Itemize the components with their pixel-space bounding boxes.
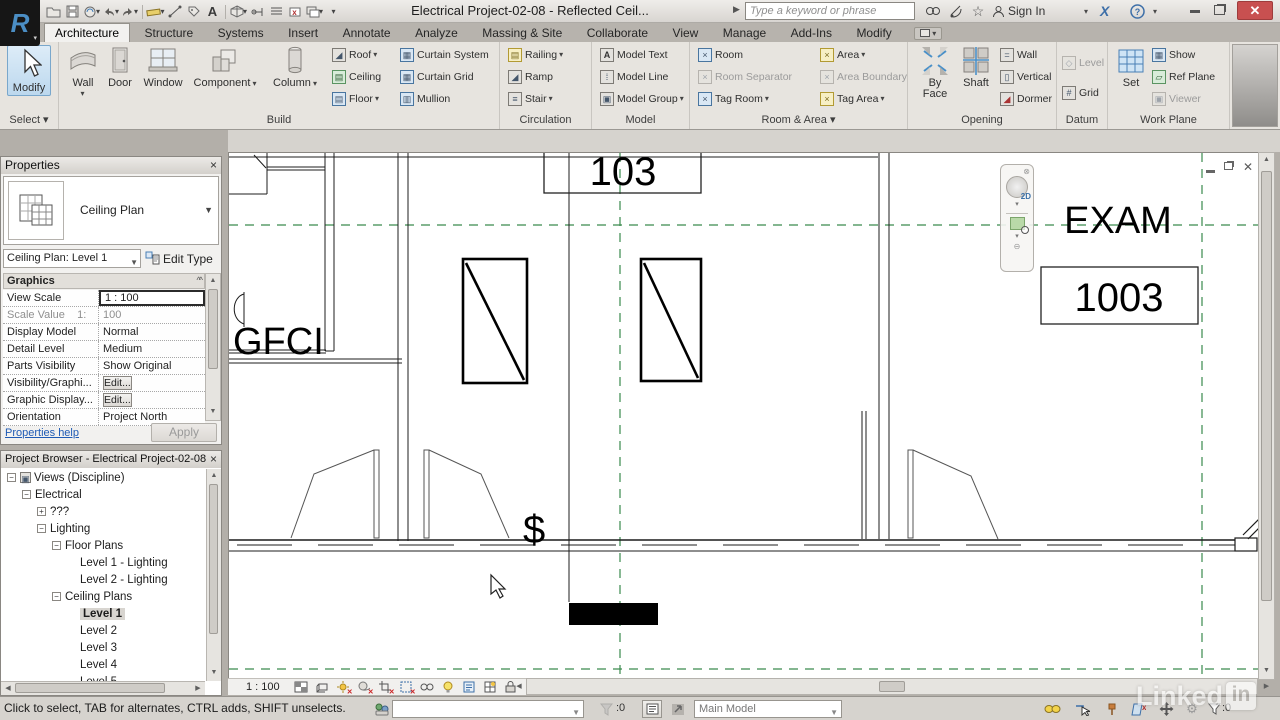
- panel-opening: ByFace Shaft =Wall ▯Vertical ◢Dormer Ope…: [908, 42, 1057, 129]
- room-label-exam: EXAM: [1064, 200, 1172, 242]
- room-tag-1003: 1003: [1075, 276, 1164, 320]
- properties-scrollbar[interactable]: ▲ ▼: [205, 273, 221, 421]
- detail-level-icon[interactable]: [314, 680, 330, 695]
- apply-button[interactable]: Apply: [151, 423, 217, 442]
- scroll-down-icon[interactable]: ▼: [207, 666, 221, 680]
- exchange-apps-icon[interactable]: X: [1100, 2, 1109, 20]
- navbar-close-icon[interactable]: ⊗: [1023, 167, 1030, 176]
- visual-style-icon[interactable]: [293, 680, 309, 695]
- browser-tree: −▣Views (Discipline) −Electrical +??? −L…: [1, 469, 205, 681]
- window-button[interactable]: Window: [141, 45, 185, 89]
- ribbon-display-toggle[interactable]: ▾: [914, 27, 942, 40]
- area-button[interactable]: ×Area▾: [820, 46, 865, 64]
- tag-icon[interactable]: [184, 3, 203, 21]
- tree-item-level1-lighting[interactable]: Level 1 - Lighting: [1, 554, 205, 571]
- crop-region-icon[interactable]: [398, 680, 414, 695]
- panel-icon: [920, 29, 930, 37]
- tree-item-floor-plans[interactable]: −Floor Plans: [1, 537, 205, 554]
- set-work-plane-button[interactable]: Set: [1114, 45, 1148, 89]
- room-separator-button: ×Room Separator: [698, 68, 792, 86]
- light-fixtures[interactable]: [463, 259, 701, 383]
- tab-collaborate[interactable]: Collaborate: [577, 24, 658, 42]
- component-button[interactable]: Component ▾: [187, 45, 263, 89]
- tab-analyze[interactable]: Analyze: [405, 24, 468, 42]
- level-button: ◇Level: [1062, 54, 1104, 72]
- type-selector-caret-icon[interactable]: ▼: [204, 205, 213, 215]
- view-restore-icon[interactable]: [1224, 161, 1233, 173]
- svg-text:?: ?: [1135, 7, 1141, 17]
- dormer-icon: ◢: [1000, 92, 1014, 106]
- scroll-right-icon[interactable]: ▶: [192, 682, 204, 695]
- visibility-edit-button[interactable]: Edit...: [103, 376, 132, 390]
- room-tag-103: 103: [590, 153, 657, 194]
- column-icon: [284, 45, 306, 77]
- instance-caret-icon: ▼: [130, 254, 138, 271]
- property-row: Display Model Normal: [3, 324, 205, 341]
- window-icon: [147, 45, 179, 77]
- tree-item-level2[interactable]: Level 2: [1, 622, 205, 639]
- door-symbols[interactable]: [291, 450, 998, 539]
- show-work-plane-button[interactable]: ▦Show: [1152, 46, 1195, 64]
- shaft-icon: [961, 45, 991, 77]
- room-icon: ×: [698, 48, 712, 62]
- model-group-button[interactable]: ▣Model Group▾: [600, 90, 684, 108]
- scroll-left-icon[interactable]: ◀: [2, 682, 14, 695]
- revit-application-menu[interactable]: R▾: [0, 0, 40, 46]
- panel-label-model: Model: [592, 113, 689, 129]
- panel-model: AModel Text ⁞Model Line ▣Model Group▾ Mo…: [592, 42, 690, 129]
- shadows-icon[interactable]: [356, 680, 372, 695]
- panel-datum: ◇Level #Grid Datum: [1057, 42, 1108, 129]
- gfci-label: GFCI: [233, 321, 324, 363]
- switch-symbol: $: [523, 508, 545, 552]
- close-button[interactable]: ✕: [1237, 1, 1273, 20]
- grid-button[interactable]: #Grid: [1062, 84, 1099, 102]
- scroll-up-icon[interactable]: ▲: [206, 274, 220, 288]
- model-group-icon: ▣: [600, 92, 614, 106]
- ceiling-plan-icon: [16, 191, 56, 231]
- filled-ceiling-element[interactable]: [569, 603, 658, 625]
- tag-room-button[interactable]: ×Tag Room▾: [698, 90, 769, 108]
- panel-build: Wall▾ Door Window Component ▾ Column ▾ ◢…: [59, 42, 500, 129]
- view-minimize-icon[interactable]: [1206, 164, 1215, 176]
- tab-systems[interactable]: Systems: [208, 24, 274, 42]
- model-line-button[interactable]: ⁞Model Line: [600, 68, 668, 86]
- panel-label-work-plane: Work Plane: [1108, 113, 1229, 129]
- graphic-display-edit-button[interactable]: Edit...: [103, 393, 132, 407]
- column-button[interactable]: Column ▾: [269, 45, 321, 89]
- stair-icon: ≡: [508, 92, 522, 106]
- panel-label-opening: Opening: [908, 113, 1056, 129]
- tree-item-level4[interactable]: Level 4: [1, 656, 205, 673]
- restore-button[interactable]: [1214, 5, 1225, 15]
- linkedin-watermark: Linkedin: [1136, 676, 1256, 716]
- door-icon: [107, 45, 133, 77]
- vertical-opening-button[interactable]: ▯Vertical: [1000, 68, 1051, 86]
- tag-area-button[interactable]: ×Tag Area▾: [820, 90, 884, 108]
- tab-structure[interactable]: Structure: [134, 24, 203, 42]
- scroll-up-icon[interactable]: ▲: [1259, 153, 1274, 167]
- properties-scroll-thumb[interactable]: [208, 289, 218, 369]
- wall-button[interactable]: Wall▾: [65, 45, 101, 98]
- roof-button[interactable]: ◢Roof▾: [332, 46, 377, 64]
- window-title: Electrical Project-02-08 - Reflected Cei…: [340, 3, 720, 18]
- type-selector[interactable]: Ceiling Plan ▼: [3, 176, 219, 245]
- panel-work-plane: Set ▦Show ▱Ref Plane ▣Viewer Work Plane: [1108, 42, 1230, 129]
- browser-vscrollbar[interactable]: ▲ ▼: [206, 469, 221, 681]
- room-button[interactable]: ×Room: [698, 46, 743, 64]
- mullion-button[interactable]: ▥Mullion: [400, 90, 450, 108]
- area-boundary-button: ×Area Boundary: [820, 68, 907, 86]
- ribbon: Modify Select ▾ Wall▾ Door Window Compon…: [0, 42, 1280, 130]
- by-face-icon: [920, 45, 950, 77]
- type-preview: [8, 181, 64, 240]
- floor-icon: ▤: [332, 92, 346, 106]
- show-work-plane-icon: ▦: [1152, 48, 1166, 62]
- ceiling-plan-drawing: 103 EXAM 1003 GFCI $: [229, 153, 1259, 679]
- set-work-plane-icon: [1116, 45, 1146, 77]
- tree-item-lighting[interactable]: −Lighting: [1, 520, 205, 537]
- panel-label-datum: Datum: [1057, 113, 1107, 129]
- hide-isolate-icon[interactable]: [419, 680, 435, 695]
- wall-opening-button[interactable]: =Wall: [1000, 46, 1037, 64]
- properties-close-icon[interactable]: ×: [210, 158, 217, 172]
- zoom-region-icon[interactable]: [1010, 217, 1025, 230]
- project-browser: Project Browser - Electrical Project-02-…: [0, 450, 222, 696]
- panel-label-circulation: Circulation: [500, 113, 591, 129]
- ribbon-tab-bar: Architecture Structure Systems Insert An…: [0, 23, 1280, 42]
- aligned-dimension-icon[interactable]: [165, 3, 184, 21]
- help-icon[interactable]: ?: [1130, 2, 1145, 20]
- active-only-icon[interactable]: [668, 700, 688, 718]
- ramp-button[interactable]: ◢Ramp: [508, 68, 553, 86]
- tag-room-icon: ×: [698, 92, 712, 106]
- property-row: Detail Level Medium: [3, 341, 205, 358]
- viewer-button: ▣Viewer: [1152, 90, 1201, 108]
- title-expand-icon[interactable]: ▶: [733, 4, 740, 15]
- area-icon: ×: [820, 48, 834, 62]
- tag-area-icon: ×: [820, 92, 834, 106]
- modify-cursor-icon: [16, 48, 42, 82]
- tab-view[interactable]: View: [663, 24, 709, 42]
- door-button[interactable]: Door: [103, 45, 137, 89]
- scroll-down-icon[interactable]: ▼: [1259, 664, 1274, 678]
- panel-label-select[interactable]: Select ▾: [0, 113, 58, 129]
- tab-insert[interactable]: Insert: [278, 24, 328, 42]
- curtain-system-button[interactable]: ▦Curtain System: [400, 46, 489, 64]
- reveal-hidden-icon[interactable]: [440, 680, 456, 695]
- type-name: Ceiling Plan: [80, 203, 144, 217]
- room-separator-icon: ×: [698, 70, 712, 84]
- display-model-value[interactable]: Normal: [99, 324, 205, 340]
- property-row: Scale Value 1: 100: [3, 307, 205, 324]
- steering-wheel-icon[interactable]: 2D: [1006, 176, 1028, 198]
- properties-palette: Properties× Ceiling Plan ▼ Ceiling Plan:…: [0, 156, 222, 445]
- ribbon-empty-space: [1232, 44, 1278, 127]
- viewer-icon: ▣: [1152, 92, 1166, 106]
- title-bar: ▾ ▾ ▾ ▾ A ▾ x ▾ ▾ Electrical Project-02-…: [0, 0, 1280, 23]
- editable-only-glasses-icon[interactable]: [1042, 700, 1062, 718]
- tree-item-electrical[interactable]: −Electrical: [1, 486, 205, 503]
- drawing-canvas[interactable]: 103 EXAM 1003 GFCI $: [228, 152, 1258, 678]
- ref-plane-button[interactable]: ▱Ref Plane: [1152, 68, 1215, 86]
- close-hidden-windows-icon[interactable]: x: [286, 3, 305, 21]
- parts-visibility-value[interactable]: Show Original: [99, 358, 205, 374]
- tab-manage[interactable]: Manage: [713, 24, 776, 42]
- zoom-caret-icon[interactable]: ▾: [1015, 232, 1019, 240]
- view-scale-input[interactable]: 1 : 100: [99, 290, 205, 306]
- instance-selector[interactable]: Ceiling Plan: Level 1▼: [3, 249, 141, 268]
- section-icon[interactable]: [248, 3, 267, 21]
- hscroll-thumb[interactable]: [879, 681, 905, 692]
- view-close-icon[interactable]: ✕: [1243, 160, 1253, 174]
- wall-icon: [68, 45, 98, 77]
- properties-help-link[interactable]: Properties help: [5, 427, 79, 439]
- tree-item-level2-lighting[interactable]: Level 2 - Lighting: [1, 571, 205, 588]
- crop-view-icon[interactable]: [377, 680, 393, 695]
- detail-level-value[interactable]: Medium: [99, 341, 205, 357]
- ceiling-icon: ▤: [332, 70, 346, 84]
- area-boundary-icon: ×: [820, 70, 834, 84]
- section-graphics[interactable]: Graphics^^: [3, 273, 205, 289]
- by-face-button[interactable]: ByFace: [916, 45, 954, 100]
- tab-modify[interactable]: Modify: [846, 24, 901, 42]
- open-icon[interactable]: [44, 3, 63, 21]
- ceiling-button[interactable]: ▤Ceiling: [332, 68, 381, 86]
- wall-opening-icon: =: [1000, 48, 1014, 62]
- property-row: Parts Visibility Show Original: [3, 358, 205, 375]
- edit-type-button[interactable]: Edit Type: [145, 247, 221, 270]
- tab-add-ins[interactable]: Add-Ins: [781, 24, 842, 42]
- svg-text:x: x: [292, 8, 297, 17]
- curtain-grid-icon: ▦: [400, 70, 414, 84]
- vertical-opening-icon: ▯: [1000, 70, 1014, 84]
- undo-icon[interactable]: ▾: [101, 3, 120, 21]
- browser-hscroll-thumb[interactable]: [15, 683, 165, 693]
- sync-icon[interactable]: ▾: [82, 3, 101, 21]
- main-model-combo[interactable]: Main Model▼: [694, 700, 842, 718]
- worksets-icon[interactable]: [372, 700, 392, 718]
- properties-title: Properties×: [1, 157, 221, 174]
- thin-lines-icon[interactable]: [267, 3, 286, 21]
- model-text-icon: A: [600, 48, 614, 62]
- navigation-bar: ⊗ 2D ▾ ▾ ⊖: [1000, 164, 1034, 272]
- railing-button[interactable]: ▤Railing▾: [508, 46, 563, 64]
- mouse-cursor: [491, 575, 505, 598]
- view-scale[interactable]: 1 : 100: [246, 681, 280, 693]
- tree-item-ceiling-plans[interactable]: −Ceiling Plans: [1, 588, 205, 605]
- save-icon[interactable]: [63, 3, 82, 21]
- communication-center-icon[interactable]: [946, 2, 966, 20]
- edit-type-icon: [145, 251, 160, 266]
- sign-in-button[interactable]: Sign In: [1008, 2, 1045, 20]
- switch-windows-icon[interactable]: ▾: [305, 3, 324, 21]
- shaft-button[interactable]: Shaft: [958, 45, 994, 89]
- view-area-margin: [228, 130, 1280, 152]
- level-icon: ◇: [1062, 56, 1076, 70]
- dormer-button[interactable]: ◢Dormer: [1000, 90, 1052, 108]
- panel-select: Modify Select ▾: [0, 42, 59, 129]
- corridor-wall[interactable]: [229, 517, 1259, 551]
- floor-button[interactable]: ▤Floor▾: [332, 90, 379, 108]
- panel-circulation: ▤Railing▾ ◢Ramp ≡Stair▾ Circulation: [500, 42, 592, 129]
- tab-architecture[interactable]: Architecture: [44, 23, 130, 42]
- sun-path-icon[interactable]: [335, 680, 351, 695]
- scroll-right-icon[interactable]: ▶: [1258, 679, 1275, 694]
- browser-hscrollbar[interactable]: ◀ ▶: [1, 681, 205, 695]
- property-row: Visibility/Graphi... Edit...: [3, 375, 205, 392]
- wheel-caret-icon[interactable]: ▾: [1015, 200, 1019, 208]
- tree-item-level5[interactable]: Level 5: [1, 673, 205, 681]
- panel-label-room-area[interactable]: Room & Area ▾: [690, 113, 907, 129]
- measure-icon[interactable]: ▾: [146, 3, 165, 21]
- property-row: Graphic Display... Edit...: [3, 392, 205, 409]
- main-area: 103 EXAM 1003 GFCI $ ✕ ⊗ 2D: [0, 130, 1280, 696]
- tree-item-views[interactable]: −▣Views (Discipline): [1, 469, 205, 486]
- search-icon[interactable]: [922, 2, 942, 20]
- scroll-left-icon[interactable]: ◀: [512, 679, 526, 694]
- redo-icon[interactable]: ▾: [120, 3, 139, 21]
- tree-item-level1[interactable]: Level 1: [1, 605, 205, 622]
- status-hint: Click to select, TAB for alternates, CTR…: [4, 701, 346, 715]
- model-text-button[interactable]: AModel Text: [600, 46, 668, 64]
- text-icon[interactable]: A: [203, 3, 222, 21]
- scroll-down-icon[interactable]: ▼: [206, 405, 220, 419]
- tab-massing-site[interactable]: Massing & Site: [472, 24, 572, 42]
- favorites-icon[interactable]: ☆: [969, 2, 987, 20]
- railing-icon: ▤: [508, 48, 522, 62]
- worksets-combo[interactable]: ▼: [392, 700, 584, 718]
- browser-scroll-thumb[interactable]: [209, 484, 218, 634]
- project-browser-title: Project Browser - Electrical Project-02-…: [1, 451, 221, 468]
- component-icon: [209, 45, 241, 77]
- model-line-icon: ⁞: [600, 70, 614, 84]
- tree-item-unknown[interactable]: +???: [1, 503, 205, 520]
- curtain-system-icon: ▦: [400, 48, 414, 62]
- navbar-collapse-icon[interactable]: ⊖: [1014, 242, 1021, 251]
- grid-icon: #: [1062, 86, 1076, 100]
- ramp-icon: ◢: [508, 70, 522, 84]
- status-bar: Click to select, TAB for alternates, CTR…: [0, 696, 1280, 720]
- curtain-grid-button[interactable]: ▦Curtain Grid: [400, 68, 474, 86]
- temporary-view-properties-icon[interactable]: [461, 680, 477, 695]
- view-control-bar: 1 : 100: [228, 678, 528, 695]
- property-row: View Scale 1 : 100: [3, 290, 205, 307]
- search-input[interactable]: [745, 2, 915, 20]
- panel-label-build: Build: [59, 113, 499, 129]
- default-3d-view-icon[interactable]: ▾: [229, 3, 248, 21]
- tree-item-level3[interactable]: Level 3: [1, 639, 205, 656]
- browser-close-icon[interactable]: ×: [210, 452, 217, 466]
- panel-room-area: ×Room ×Room Separator ×Tag Room▾ ×Area▾ …: [690, 42, 908, 129]
- worksharing-display-icon[interactable]: [482, 680, 498, 695]
- design-option-count: :0: [616, 702, 625, 714]
- design-options-icon: [596, 700, 616, 718]
- minimize-button[interactable]: [1190, 10, 1200, 13]
- mullion-icon: ▥: [400, 92, 414, 106]
- tab-annotate[interactable]: Annotate: [333, 24, 401, 42]
- user-icon: [990, 2, 1006, 20]
- revit-window: ▾ ▾ ▾ ▾ A ▾ x ▾ ▾ Electrical Project-02-…: [0, 0, 1280, 720]
- navbar-divider: [1006, 213, 1028, 214]
- roof-icon: ◢: [332, 48, 346, 62]
- modify-button[interactable]: Modify: [7, 45, 51, 96]
- canvas-vscrollbar[interactable]: ▲ ▼: [1258, 152, 1275, 680]
- scroll-up-icon[interactable]: ▲: [207, 469, 221, 483]
- design-options-dialog-button[interactable]: [642, 700, 662, 718]
- ref-plane-icon: ▱: [1152, 70, 1166, 84]
- select-pinned-icon[interactable]: [1102, 700, 1122, 718]
- sign-in-caret-icon[interactable]: ▾: [1084, 2, 1088, 20]
- stair-button[interactable]: ≡Stair▾: [508, 90, 553, 108]
- help-caret-icon[interactable]: ▾: [1153, 2, 1157, 20]
- vscroll-thumb[interactable]: [1261, 171, 1272, 601]
- wall-lines[interactable]: [229, 153, 889, 602]
- quick-access-toolbar: ▾ ▾ ▾ ▾ A ▾ x ▾ ▾: [44, 2, 343, 21]
- select-links-icon[interactable]: [1072, 700, 1092, 718]
